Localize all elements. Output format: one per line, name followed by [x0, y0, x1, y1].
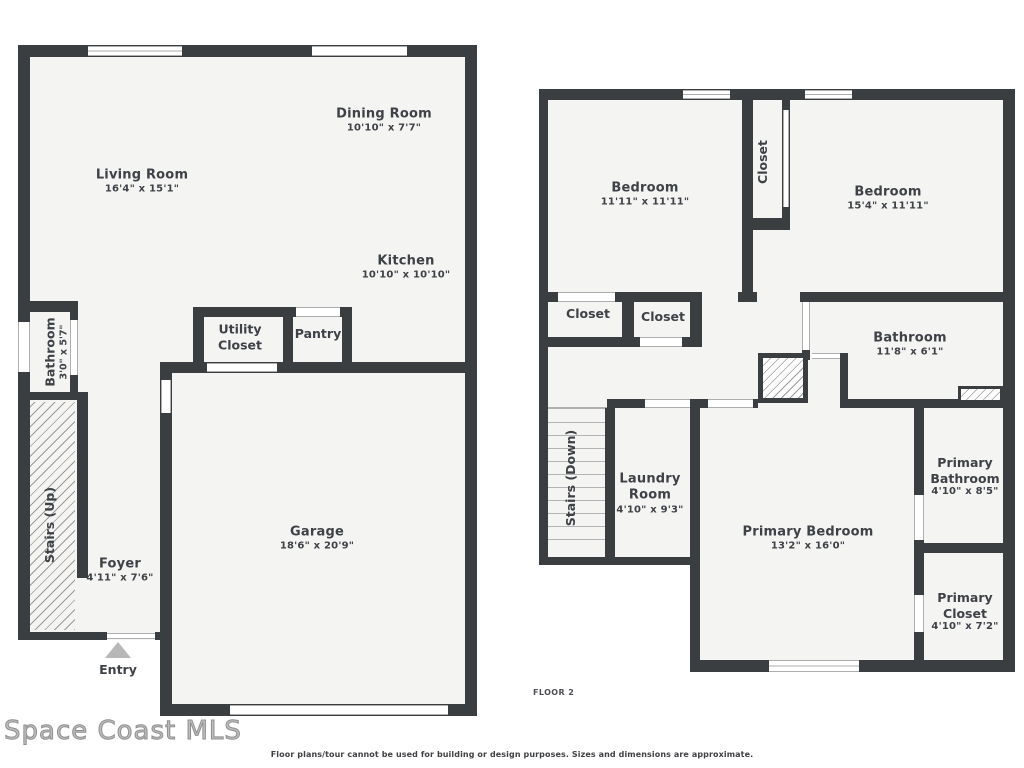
wall [160, 362, 172, 716]
wall [622, 302, 634, 337]
wall [607, 399, 645, 408]
wall [18, 632, 107, 640]
room-label-bedroom-left: Bedroom 11'11" x 11'11" [601, 181, 690, 210]
door-opening [708, 399, 753, 408]
door-opening [914, 595, 924, 632]
room-label-primary-closet: Primary Closet 4'10" x 7'2" [931, 590, 998, 634]
room-label-closet-mid: Closet [641, 309, 685, 325]
wall [539, 89, 1015, 100]
wall [682, 337, 702, 347]
watermark: Space Coast MLS [4, 716, 242, 746]
wall [605, 408, 615, 565]
wall [465, 57, 477, 716]
wall [539, 337, 640, 347]
wall [840, 353, 848, 408]
room-label-bathroom: Bathroom 3'0" x 5'7" [42, 317, 70, 386]
door-opening [812, 353, 840, 359]
stairs-edge-line [548, 407, 607, 409]
window [769, 660, 859, 672]
room-label-bathroom2: Bathroom 11'8" x 6'1" [873, 331, 947, 360]
wall [18, 301, 78, 312]
wall [18, 392, 88, 400]
wall [800, 292, 1003, 302]
disclaimer-text: Floor plans/tour cannot be used for buil… [271, 750, 754, 759]
room-label-stairs-down: Stairs (Down) [563, 430, 579, 527]
window [88, 46, 182, 56]
floor-caption: FLOOR 2 [533, 688, 574, 697]
wall [742, 98, 753, 302]
entry-arrow-icon [105, 642, 131, 658]
window [683, 90, 730, 99]
window [312, 46, 407, 56]
wall [738, 292, 757, 302]
window [805, 90, 852, 99]
window [18, 322, 30, 372]
door-opening [70, 320, 78, 375]
door-opening [207, 363, 277, 372]
hatched-void-small [958, 386, 1003, 403]
wall [615, 292, 698, 302]
wall [539, 100, 548, 565]
door-opening [161, 380, 171, 413]
room-label-utility-closet: Utility Closet [218, 321, 262, 352]
room-label-closet-left: Closet [566, 306, 610, 322]
room-label-stairs-up: Stairs (Up) [42, 487, 58, 563]
entry-door-opening [107, 633, 155, 639]
wall [1003, 100, 1015, 672]
entry-label: Entry [99, 662, 137, 678]
wall [914, 543, 1015, 553]
wall [283, 307, 293, 367]
room-label-kitchen: Kitchen 10'10" x 10'10" [362, 254, 451, 283]
room-label-garage: Garage 18'6" x 20'9" [280, 525, 354, 554]
room-label-closet-top: Closet [755, 140, 771, 184]
room-label-primary-bedroom: Primary Bedroom 13'2" x 16'0" [743, 525, 874, 554]
door-opening [296, 307, 340, 317]
room-label-primary-bathroom: Primary Bathroom 4'10" x 8'5" [930, 455, 999, 499]
closet-slider-opening [558, 292, 615, 302]
door-opening [914, 495, 924, 540]
room-label-bedroom-right: Bedroom 15'4" x 11'11" [847, 185, 928, 214]
room-label-pantry: Pantry [295, 326, 341, 342]
wall [742, 218, 790, 230]
door-opening [645, 399, 690, 408]
room-label-laundry: Laundry Room 4'10" x 9'3" [616, 472, 683, 517]
door-opening [640, 337, 682, 347]
garage-door-opening [230, 705, 448, 715]
wall [77, 400, 88, 578]
wall [539, 557, 700, 565]
hatched-void [758, 353, 808, 403]
door-opening [802, 302, 810, 350]
closet-slider-opening [783, 110, 789, 207]
room-label-living-room: Living Room 16'4" x 15'1" [96, 168, 188, 197]
floorplan-canvas: Dining Room 10'10" x 7'7" Living Room 16… [0, 0, 1024, 768]
wall [539, 292, 558, 302]
wall [342, 307, 352, 373]
wall [690, 399, 700, 672]
room-label-foyer: Foyer 4'11" x 7'6" [86, 557, 153, 586]
wall [18, 45, 477, 57]
wall [155, 632, 172, 640]
room-label-dining-room: Dining Room 10'10" x 7'7" [336, 107, 432, 136]
